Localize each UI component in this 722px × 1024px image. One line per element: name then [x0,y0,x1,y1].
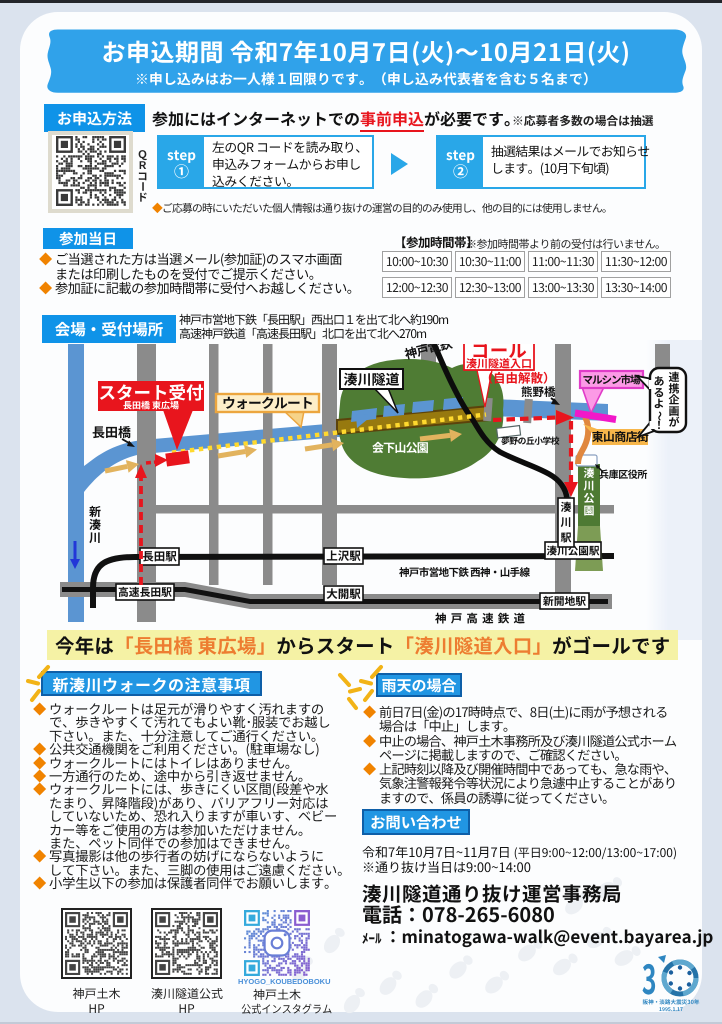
svg-text:が: が [669,414,680,430]
svg-text:川: 川 [89,529,101,546]
svg-text:園: 園 [584,503,595,519]
svg-text:長田橋 東広場: 長田橋 東広場 [123,399,179,412]
svg-text:長田駅: 長田駅 [142,549,177,565]
svg-text:新開地駅: 新開地駅 [543,593,586,609]
svg-text:湊: 湊 [561,499,572,515]
svg-text:上沢駅: 上沢駅 [326,548,361,564]
svg-text:お申込期間 令和7年10月7日(火)～10月21日(火): お申込期間 令和7年10月7日(火)～10月21日(火) [101,33,630,68]
svg-text:駅: 駅 [561,529,572,545]
svg-text:神戸高速鉄道: 神戸高速鉄道 [435,611,529,627]
svg-text:！: ！ [654,417,665,433]
svg-text:川: 川 [561,514,572,530]
svg-text:よ: よ [654,396,665,412]
svg-text:大開駅: 大開駅 [326,586,361,602]
svg-text:長田橋: 長田橋 [92,422,131,441]
svg-text:※申し込みはお一人様１回限りです。（申し込み代表者を含む５名: ※申し込みはお一人様１回限りです。（申し込み代表者を含む５名まで） [135,68,597,88]
svg-text:兵庫区役所: 兵庫区役所 [599,466,647,481]
svg-text:湊川隧道: 湊川隧道 [344,370,400,390]
svg-text:熊野橋: 熊野橋 [521,384,556,400]
svg-text:ウォークルート: ウォークルート [222,392,313,412]
svg-text:高速長田駅: 高速長田駅 [118,584,172,600]
svg-text:会下山公園: 会下山公園 [372,439,429,456]
svg-text:阪神・淡路大震災30年: 阪神・淡路大震災30年 [643,998,700,1006]
svg-text:夢野の丘小学校: 夢野の丘小学校 [501,434,560,447]
svg-text:マルシン市場: マルシン市場 [583,373,641,388]
svg-text:1995.1.17: 1995.1.17 [659,1006,683,1013]
svg-text:神戸市営地下鉄 西神・山手線: 神戸市営地下鉄 西神・山手線 [399,565,531,580]
